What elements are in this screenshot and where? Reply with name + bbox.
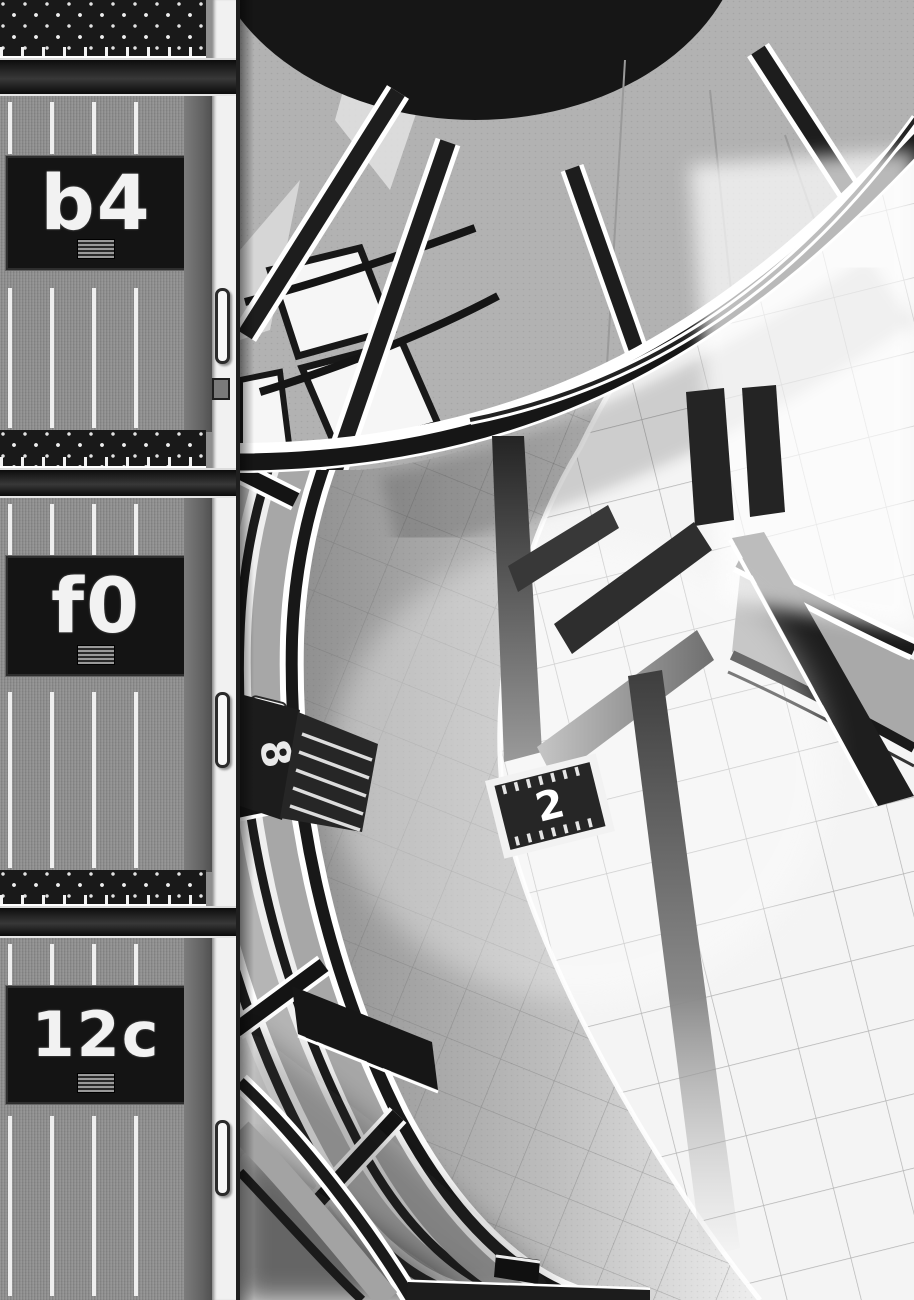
band-ticks bbox=[0, 895, 206, 904]
keypad bbox=[77, 645, 115, 665]
door-lintel bbox=[0, 58, 236, 96]
door-cast-shadow bbox=[240, 0, 254, 1300]
door-b4: b4 bbox=[0, 96, 212, 432]
door-latch bbox=[212, 378, 230, 400]
door-handle bbox=[215, 288, 230, 364]
door-groove-lines bbox=[8, 1116, 156, 1296]
door-12c: 12c bbox=[0, 938, 212, 1300]
door-frame-strip bbox=[212, 0, 236, 1300]
door-lintel bbox=[0, 468, 236, 498]
door-f0: f0 bbox=[0, 498, 212, 872]
door-label: f0 bbox=[51, 568, 141, 644]
manga-panel: b4 f0 bbox=[0, 0, 914, 1300]
door-column: b4 f0 bbox=[0, 0, 240, 1300]
door-groove-lines bbox=[8, 288, 156, 428]
door-groove-lines bbox=[8, 504, 156, 556]
keypad bbox=[77, 1073, 115, 1093]
door-label: b4 bbox=[40, 165, 151, 241]
band-ticks bbox=[0, 47, 206, 56]
door-handle bbox=[215, 1120, 230, 1196]
door-groove-lines bbox=[8, 944, 156, 986]
door-plate: 12c bbox=[6, 986, 186, 1104]
band-ticks bbox=[0, 457, 206, 466]
door-plate: b4 bbox=[6, 156, 186, 270]
door-groove-lines bbox=[8, 692, 156, 868]
door-label: 12c bbox=[31, 1004, 160, 1066]
door-edge-channel bbox=[184, 498, 212, 872]
door-column-edge bbox=[236, 0, 240, 1300]
door-edge-channel bbox=[184, 96, 212, 432]
atrium-view: 8 2 bbox=[240, 0, 914, 1300]
ceiling-band bbox=[0, 430, 206, 468]
ceiling-band bbox=[0, 0, 206, 58]
door-lintel bbox=[0, 906, 236, 938]
door-plate: f0 bbox=[6, 556, 186, 676]
door-handle bbox=[215, 692, 230, 768]
keypad bbox=[77, 239, 115, 259]
door-edge-channel bbox=[184, 938, 212, 1300]
door-groove-lines bbox=[8, 102, 156, 154]
ceiling-band bbox=[0, 870, 206, 906]
